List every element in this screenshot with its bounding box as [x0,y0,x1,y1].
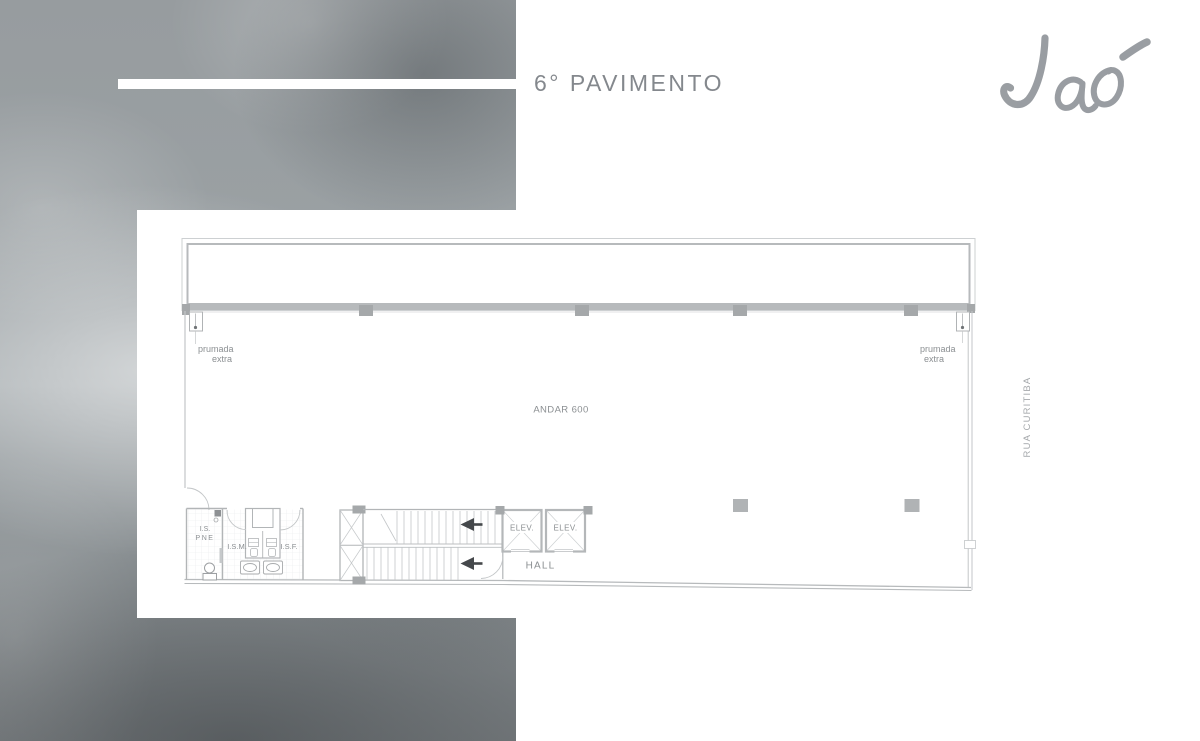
prumada-left-label-1: prumada [198,344,234,354]
hall-door-arc [481,557,503,579]
entry-door-arc [187,488,209,510]
prumada-right-label-1: prumada [920,344,956,354]
stair-core [340,506,503,585]
floor-plan: ANDAR 600 prumada extra prumada extra I.… [0,0,1200,741]
hall-label: HALL [526,561,556,572]
stair-treads-lower [367,548,458,581]
wc-female-label: I.S.F. [280,542,297,551]
stair-break-line [381,514,396,541]
elevator-1-label: ELEV. [510,524,534,533]
area-label: ANDAR 600 [533,405,588,416]
prumada-left-label-2: extra [212,354,232,364]
elevator-2-label: ELEV. [554,524,578,533]
page: 6° PAVIMENTO RUA CURITIBA [0,0,1200,741]
wc-male-label: I.S.M. [227,542,247,551]
prumada-shaft-left [190,312,203,344]
stair-treads-upper [381,511,495,544]
wc-accessible-label-2: PNE [196,535,215,542]
prumada-right-label-2: extra [924,354,944,364]
prumada-shaft-right [957,312,970,343]
terrace-band [182,239,975,311]
wc-accessible-label-1: I.S. [200,526,211,533]
